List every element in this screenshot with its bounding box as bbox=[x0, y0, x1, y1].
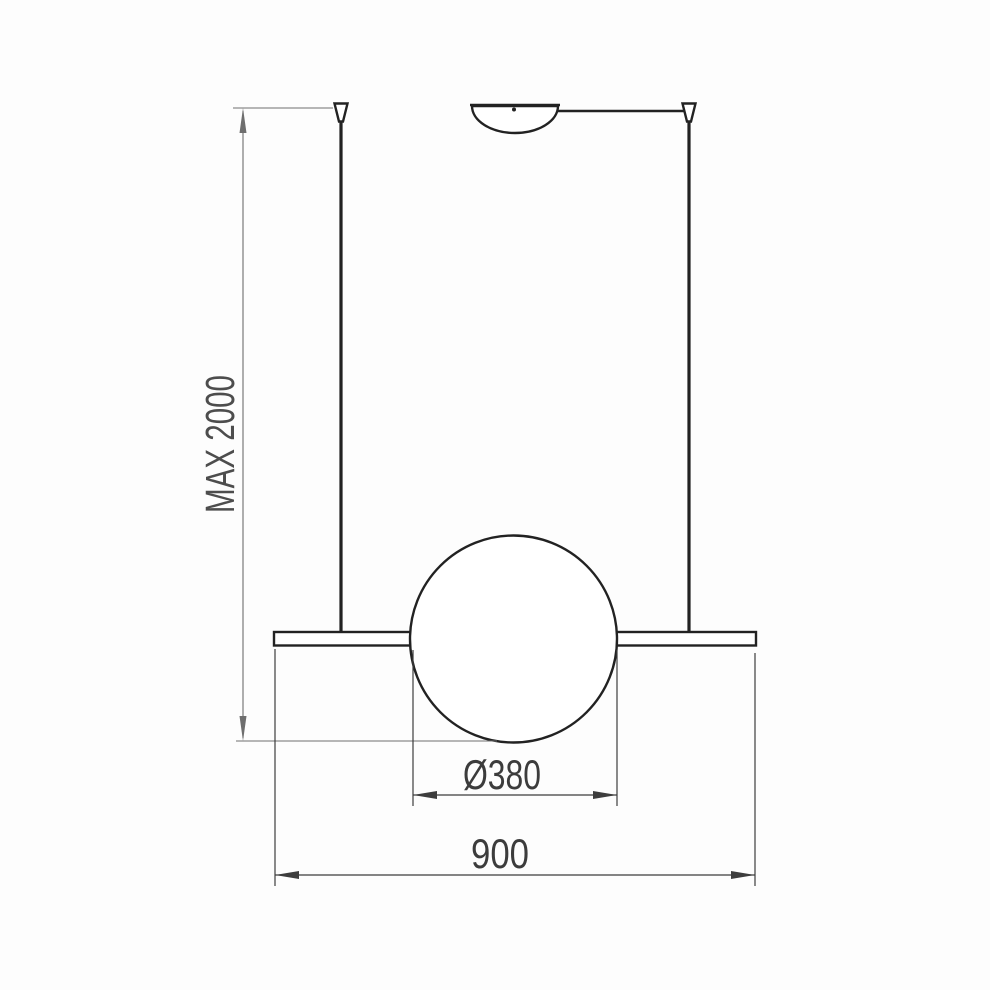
width-label: 900 bbox=[471, 830, 529, 877]
diameter-label: Ø380 bbox=[463, 751, 541, 798]
canopy-cable-exit-dot bbox=[512, 108, 516, 112]
max-height-arrow-up bbox=[240, 108, 247, 133]
right-cable-grip bbox=[683, 104, 696, 122]
max-height-label: MAX 2000 bbox=[197, 375, 243, 513]
diameter-arrow-right bbox=[593, 791, 617, 799]
pendant-lamp-dimension-drawing: MAX 2000 Ø380 900 bbox=[0, 0, 990, 990]
width-arrow-left bbox=[275, 871, 299, 879]
left-cable-grip bbox=[335, 104, 348, 122]
max-height-arrow-down bbox=[240, 716, 247, 741]
diameter-arrow-left bbox=[413, 791, 437, 799]
dimension-drawing-page: MAX 2000 Ø380 900 bbox=[0, 0, 990, 990]
sphere-diffuser bbox=[410, 536, 617, 743]
width-arrow-right bbox=[731, 871, 755, 879]
